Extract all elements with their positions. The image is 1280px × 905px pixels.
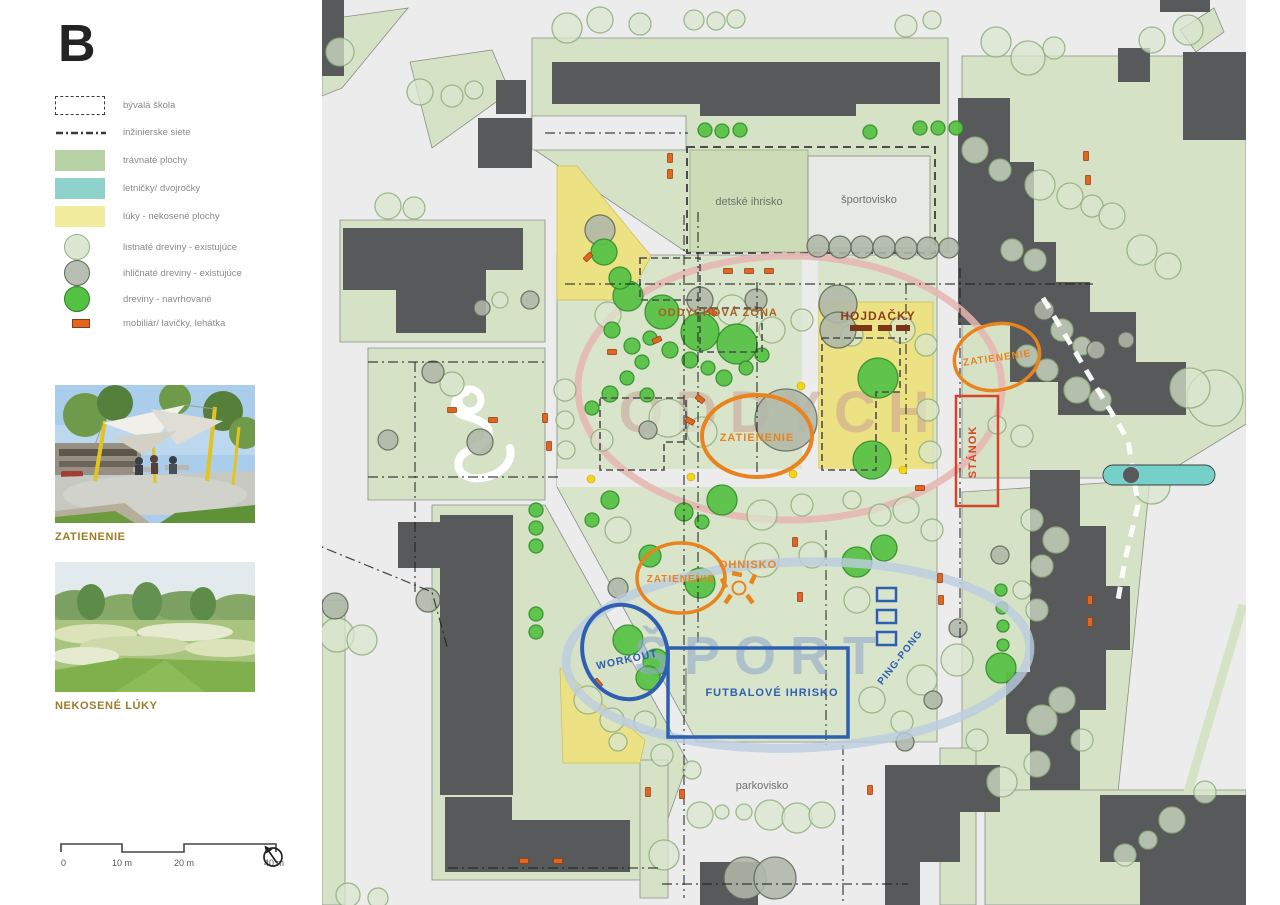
photo-caption: ZATIENENIE (55, 531, 255, 543)
legend-item-ihlicnate: ihličnaté dreviny - existujúce (55, 260, 315, 286)
scale-tick-0: 0 (61, 858, 66, 868)
scale-tick-10: 10 m (112, 858, 132, 868)
deciduous-tree-icon (55, 234, 107, 260)
site-plan: ODDYCH ŠPORT ODDYCHOVÁ ZÓNA HOJDAČKY (322, 0, 1246, 905)
north-arrow-icon (260, 843, 286, 869)
teal-swatch-icon (55, 178, 107, 199)
bench-icon (55, 319, 107, 328)
legend-label: trávnaté plochy (123, 155, 187, 166)
legend-label: dreviny - navrhované (123, 294, 212, 305)
label-parkovisko: parkovisko (736, 780, 789, 792)
legend-label: ihličnaté dreviny - existujúce (123, 268, 242, 279)
label-stanok: STÁNOK (966, 426, 979, 478)
legend-item-mobiliar: mobiliár/ lavičky, lehátka (55, 318, 315, 329)
legend-item-travnate-plochy: trávnaté plochy (55, 150, 315, 171)
sport-watermark: ŠPORT (634, 625, 890, 686)
legend-label: listnaté dreviny - existujúce (123, 242, 237, 253)
label-sportovisko: športovisko (841, 194, 897, 206)
legend-label: letničky/ dvojročky (123, 183, 200, 194)
legend-item-listnate: listnaté dreviny - existujúce (55, 234, 315, 260)
label-hojdacky: HOJDAČKY (840, 308, 915, 323)
swing-symbols (850, 325, 910, 331)
site-plan-svg: ODDYCH ŠPORT ODDYCHOVÁ ZÓNA HOJDAČKY (322, 0, 1246, 905)
photo-nekosene-luky-image (55, 562, 255, 692)
yellow-swatch-icon (55, 206, 107, 227)
legend-label: bývalá škola (123, 100, 175, 111)
legend-item-byvala-skola: bývalá škola (55, 96, 315, 115)
dashed-rect-icon (55, 96, 107, 115)
label-zatienenie-center: ZATIENENIE (720, 432, 795, 444)
photo-zatienenie-image (55, 385, 255, 523)
page-title: B (58, 14, 96, 74)
side-panel: B bývalá škola inžinierske siete trávnat… (0, 0, 322, 905)
label-oddychova-zona: ODDYCHOVÁ ZÓNA (658, 306, 778, 319)
green-swatch-icon (55, 150, 107, 171)
legend-item-luky: lúky - nekosené plochy (55, 206, 315, 227)
page: B bývalá škola inžinierske siete trávnat… (0, 0, 1280, 905)
legend: bývalá škola inžinierske siete trávnaté … (55, 96, 315, 338)
photo-zatienenie: ZATIENENIE (55, 385, 255, 543)
legend-label: mobiliár/ lavičky, lehátka (123, 318, 225, 329)
label-zatienenie-south: ZATIENENIE (647, 574, 716, 585)
legend-label: lúky - nekosené plochy (123, 211, 220, 222)
legend-item-letnicky: letničky/ dvojročky (55, 178, 315, 199)
label-ohnisko: OHNISKO (719, 559, 777, 571)
legend-item-navrhovane: dreviny - navrhované (55, 286, 315, 312)
photo-caption: NEKOSENÉ LÚKY (55, 700, 255, 712)
label-futbalove-ihrisko: FUTBALOVÉ IHRISKO (705, 686, 838, 699)
dashdot-line-icon (55, 129, 107, 137)
legend-label: inžinierske siete (123, 127, 191, 138)
scale-bar-line (61, 844, 276, 852)
conifer-tree-icon (55, 260, 107, 286)
scale-tick-20: 20 m (174, 858, 194, 868)
label-detske-ihrisko: detské ihrisko (715, 196, 782, 208)
photo-nekosene-luky: NEKOSENÉ LÚKY (55, 562, 255, 712)
legend-item-inzinierske-siete: inžinierske siete (55, 127, 315, 138)
proposed-tree-icon (55, 286, 107, 312)
annuals-strip (1103, 465, 1215, 485)
